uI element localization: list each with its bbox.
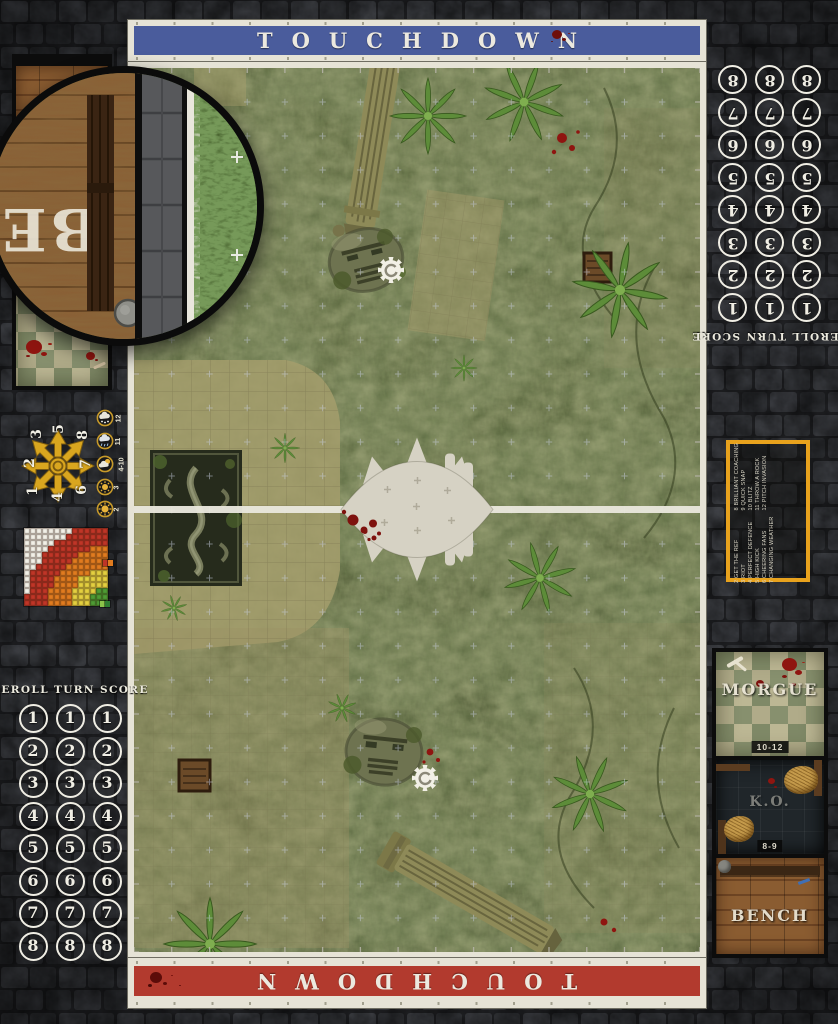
- scatter-number: 3: [30, 427, 44, 441]
- kickoff-entry: 2 GET THE REF: [734, 517, 740, 583]
- turn-track-cell: 7: [56, 899, 85, 928]
- morgue-label: MORGUE: [716, 680, 824, 699]
- turn-track-cell: 4: [19, 802, 48, 831]
- weather-value: 2: [113, 507, 120, 511]
- relief-slab: [150, 450, 242, 586]
- turn-track-cell: 6: [56, 867, 85, 896]
- kickoff-col-1: 2 GET THE REF3 RIOT4 PERFECT DEFENCE5 HI…: [734, 517, 802, 583]
- turn-track-header: REROLL TURN SCORE: [0, 684, 149, 696]
- turn-track-cell: 2: [719, 261, 748, 290]
- touchdown-text-bottom: TOUCHDOWN: [238, 969, 596, 994]
- touchdown-banner-bottom: TOUCHDOWN: [128, 958, 706, 1008]
- turn-track-right: REROLL TURN SCORE 1112223334445556667778…: [712, 60, 828, 342]
- turn-track-cell: 1: [19, 704, 48, 733]
- turn-track-header: REROLL TURN SCORE: [691, 330, 838, 342]
- weather-row: 4-10: [96, 455, 129, 473]
- kickoff-entry: 4 PERFECT DEFENCE: [748, 517, 754, 583]
- turn-track-cell: 1: [56, 704, 85, 733]
- turn-track-cell: 2: [756, 261, 785, 290]
- dugout-bottom-right: MORGUE 10-12 K.O. 8-9 BENCH: [712, 648, 828, 958]
- morgue-range: 10-12: [752, 741, 789, 753]
- turn-track-cell: 7: [756, 98, 785, 127]
- kickoff-entry: 8 BRILLIANT COACHING: [734, 443, 740, 510]
- kickoff-entry: 5 HIGH KICK: [755, 517, 761, 583]
- touchdown-text-top: TOUCHDOWN: [238, 28, 596, 53]
- blood-splatter: [768, 778, 775, 784]
- turn-track-cell: 8: [19, 932, 48, 961]
- turn-track-cell: 5: [793, 163, 822, 192]
- blood-bowl-mat: { "board_title": "Blood Bowl jungle ruin…: [0, 0, 838, 1024]
- turn-track-cell: 2: [56, 737, 85, 766]
- wooden-crate: [179, 760, 210, 791]
- blood-splatter: [552, 30, 562, 39]
- kickoff-table: 2 GET THE REF3 RIOT4 PERFECT DEFENCE5 HI…: [726, 440, 810, 582]
- turn-track-cell: 1: [93, 704, 122, 733]
- turn-track-cell: 3: [19, 769, 48, 798]
- snow-cloud-icon: [96, 409, 114, 427]
- scatter-number: 6: [75, 483, 89, 497]
- weather-row: 3: [96, 478, 119, 496]
- weather-value: 4-10: [119, 457, 126, 471]
- sun-cloud-icon: [96, 455, 114, 473]
- turn-track-cell: 6: [719, 131, 748, 160]
- turn-track-cell: 4: [719, 196, 748, 225]
- blood-splatter: [26, 340, 42, 354]
- touchdown-banner-top: TOUCHDOWN: [128, 20, 706, 62]
- sun-icon: [96, 500, 114, 518]
- turn-track-cell: 7: [719, 98, 748, 127]
- weather-row: 2: [96, 500, 119, 518]
- turn-track-cell: 4: [93, 802, 122, 831]
- turn-track-cell: 5: [93, 834, 122, 863]
- weather-value: 12: [115, 414, 122, 422]
- turn-track-cell: 5: [719, 163, 748, 192]
- turn-track-cell: 6: [93, 867, 122, 896]
- turn-track-cell: 1: [756, 293, 785, 322]
- kickoff-entry: 12 PITCH INVASION: [762, 443, 768, 510]
- kickoff-entry: 3 RIOT: [741, 517, 747, 583]
- weather-row: 11: [96, 432, 122, 450]
- ruler-legend-chip: [108, 560, 113, 566]
- weather-value: 11: [115, 437, 122, 444]
- blue-quill: [798, 878, 810, 885]
- gear-marker-icon: [378, 257, 404, 283]
- stone-bucket: [718, 860, 731, 873]
- scatter-number: 1: [26, 484, 40, 498]
- turn-track-cell: 7: [793, 98, 822, 127]
- kickoff-entry: 11 THROW A ROCK: [755, 443, 761, 510]
- banner-ticks: [136, 57, 698, 60]
- range-ruler-grid: [24, 528, 108, 606]
- morgue-box: MORGUE 10-12: [716, 652, 824, 756]
- ko-label: K.O.: [716, 794, 824, 810]
- bench-table: [720, 866, 820, 875]
- banner-bottom-bar: TOUCHDOWN: [134, 966, 700, 996]
- blood-splatter: [86, 352, 95, 360]
- turn-track-cell: 2: [19, 737, 48, 766]
- weather-value: 3: [113, 485, 120, 489]
- bench-box: BENCH: [716, 858, 824, 954]
- turn-track-grid: 111222333444555666777888: [719, 66, 822, 323]
- turn-track-cell: 2: [93, 737, 122, 766]
- turn-track-cell: 6: [19, 867, 48, 896]
- banner-ticks: [136, 1002, 698, 1005]
- ko-range: 8-9: [757, 840, 782, 852]
- turn-track-cell: 8: [793, 66, 822, 95]
- turn-track-cell: 8: [93, 932, 122, 961]
- turn-track-cell: 2: [793, 261, 822, 290]
- turn-track-grid: 111222333444555666777888: [19, 704, 122, 961]
- gear-marker-icon: [412, 765, 438, 791]
- kickoff-col-2: 8 BRILLIANT COACHING9 QUICK SNAP10 BLITZ…: [734, 443, 802, 510]
- scatter-number: 7: [79, 457, 93, 471]
- turn-track-cell: 1: [793, 293, 822, 322]
- turn-track-cell: 7: [19, 899, 48, 928]
- wood-beam: [716, 764, 750, 771]
- turn-track-cell: 8: [719, 66, 748, 95]
- turn-track-cell: 7: [93, 899, 122, 928]
- scatter-number: 2: [23, 456, 37, 470]
- turn-track-cell: 3: [756, 228, 785, 257]
- turn-track-cell: 4: [56, 802, 85, 831]
- turn-track-cell: 8: [756, 66, 785, 95]
- turn-track-cell: 5: [19, 834, 48, 863]
- kickoff-entry: 9 QUICK SNAP: [741, 443, 747, 510]
- turn-track-cell: 5: [756, 163, 785, 192]
- ko-box: K.O. 8-9: [716, 760, 824, 854]
- banner-ticks: [136, 961, 698, 964]
- hay-pile: [784, 766, 818, 794]
- turn-track-cell: 6: [756, 131, 785, 160]
- banner-top-bar: TOUCHDOWN: [134, 26, 700, 55]
- hay-pile: [724, 816, 754, 842]
- turn-track-cell: 4: [756, 196, 785, 225]
- sun-icon: [96, 478, 114, 496]
- turn-track-cell: 4: [793, 196, 822, 225]
- banner-ticks: [136, 22, 698, 25]
- turn-track-cell: 8: [56, 932, 85, 961]
- blood-splatter: [150, 972, 162, 983]
- turn-track-cell: 3: [793, 228, 822, 257]
- scatter-number: 4: [51, 490, 65, 504]
- rain-cloud-icon: [96, 432, 114, 450]
- turn-track-cell: 3: [93, 769, 122, 798]
- scatter-number: 5: [52, 422, 66, 436]
- kickoff-entry: 6 CHEERING FANS: [762, 517, 768, 583]
- turn-track-cell: 3: [56, 769, 85, 798]
- ruler-legend-chip: [105, 601, 110, 607]
- turn-track-cell: 5: [56, 834, 85, 863]
- blood-splatter: [782, 658, 797, 671]
- turn-track-cell: 1: [719, 293, 748, 322]
- turn-track-cell: 3: [719, 228, 748, 257]
- bench-label: BENCH: [716, 906, 824, 925]
- magnified-bench-letters: BE: [0, 195, 100, 263]
- kickoff-entry: 10 BLITZ: [748, 443, 754, 510]
- turn-track-cell: 6: [793, 131, 822, 160]
- weather-row: 12: [96, 409, 123, 427]
- scatter-number: 8: [76, 428, 90, 442]
- kickoff-entry: 7 CHANGING WEATHER: [769, 517, 775, 583]
- turn-track-left: REROLL TURN SCORE 1112223334445556667778…: [12, 684, 128, 966]
